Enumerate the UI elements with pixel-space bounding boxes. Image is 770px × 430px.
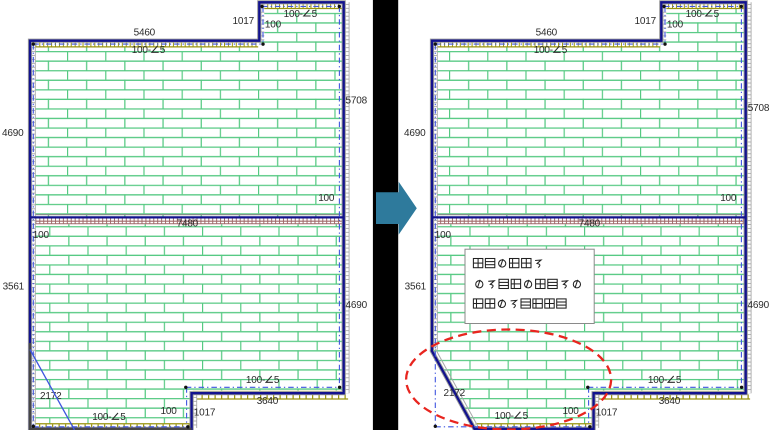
svg-text:100: 100	[33, 230, 50, 241]
svg-text:5708: 5708	[748, 103, 770, 114]
svg-text:5: 5	[714, 9, 720, 20]
svg-text:100-: 100-	[92, 412, 111, 423]
svg-text:100: 100	[667, 20, 684, 31]
svg-text:5460: 5460	[134, 27, 156, 38]
svg-text:7480: 7480	[579, 218, 601, 229]
svg-text:7480: 7480	[177, 218, 199, 229]
svg-text:5708: 5708	[346, 95, 368, 106]
svg-text:5: 5	[676, 375, 682, 386]
svg-text:1017: 1017	[596, 408, 618, 419]
svg-text:100: 100	[265, 20, 282, 31]
svg-text:100: 100	[563, 406, 580, 417]
svg-text:5460: 5460	[536, 27, 558, 38]
svg-text:100: 100	[720, 193, 737, 204]
svg-text:1017: 1017	[194, 408, 216, 419]
svg-text:5: 5	[274, 375, 280, 386]
svg-text:100-: 100-	[246, 375, 265, 386]
svg-text:100-: 100-	[648, 375, 667, 386]
svg-text:2172: 2172	[444, 388, 466, 399]
svg-text:100: 100	[161, 406, 178, 417]
svg-text:1017: 1017	[233, 16, 255, 27]
svg-text:4690: 4690	[346, 300, 368, 311]
svg-text:100: 100	[435, 230, 452, 241]
svg-text:100-: 100-	[132, 45, 151, 56]
svg-text:4690: 4690	[2, 128, 24, 139]
svg-text:3561: 3561	[3, 282, 25, 293]
svg-text:100-: 100-	[284, 9, 303, 20]
svg-text:4690: 4690	[748, 300, 770, 311]
svg-text:3640: 3640	[659, 396, 681, 407]
svg-text:5: 5	[562, 45, 568, 56]
svg-text:100: 100	[318, 193, 335, 204]
svg-text:1017: 1017	[635, 16, 657, 27]
svg-text:3561: 3561	[405, 282, 427, 293]
svg-text:100-: 100-	[534, 45, 553, 56]
svg-text:5: 5	[160, 45, 166, 56]
svg-text:3640: 3640	[257, 396, 279, 407]
svg-text:100-: 100-	[495, 411, 514, 422]
svg-text:5: 5	[312, 9, 318, 20]
svg-text:4690: 4690	[404, 128, 426, 139]
svg-text:5: 5	[120, 412, 126, 423]
svg-text:5: 5	[523, 411, 529, 422]
svg-text:100-: 100-	[686, 9, 705, 20]
